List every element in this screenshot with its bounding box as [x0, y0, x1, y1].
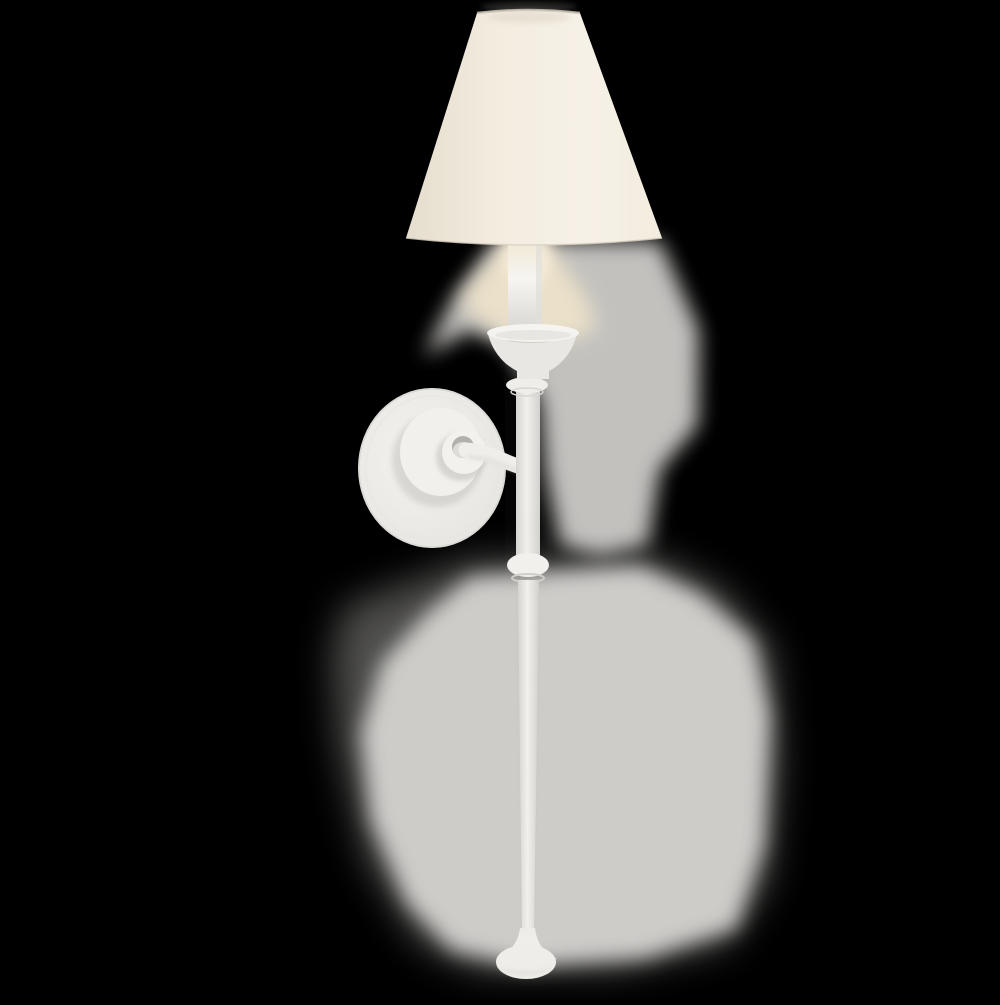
candle-edge-shadow: [536, 240, 542, 332]
shade-top-inner-shade: [487, 11, 571, 23]
product-photo: Plaster-white tail wall sconce with crea…: [0, 0, 1000, 1000]
halo-lower: [361, 566, 770, 966]
sconce-illustration: White plaster single-arm tail wall sconc…: [0, 0, 1000, 1000]
